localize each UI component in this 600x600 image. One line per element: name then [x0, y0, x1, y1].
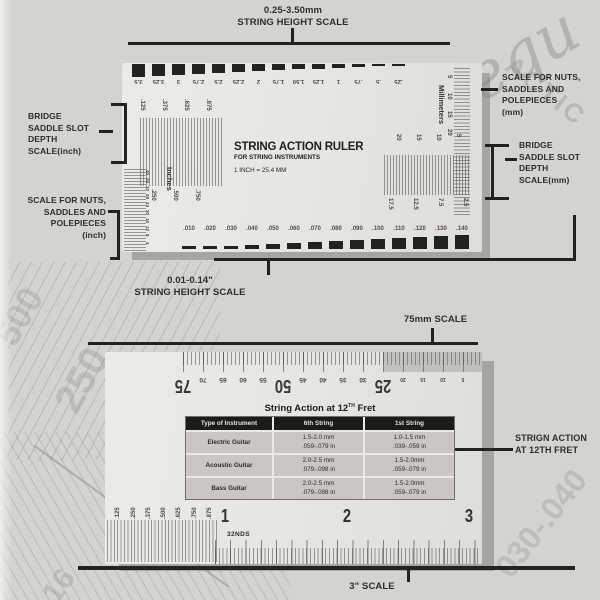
callout-line	[88, 342, 478, 345]
mm-gauge-square	[292, 64, 305, 69]
spec-table-value-cell: 1.0-1.5 mm .039-.059 in	[365, 432, 454, 453]
callout-dash	[99, 130, 113, 133]
mm-gauge-square	[172, 64, 185, 75]
callout-bracket	[124, 103, 127, 164]
nut-mm-label: 17.5	[387, 198, 393, 210]
inch-edge-number: 12	[145, 226, 150, 231]
mm-gauge-square	[392, 64, 405, 66]
mm-gauge-label: 1.75	[268, 78, 289, 84]
callout-text-line: SADDLES AND	[14, 207, 106, 219]
inch-gauge-label: .130	[430, 226, 452, 232]
inch-edge-number: 32	[145, 186, 150, 191]
inch-edge-ruler	[124, 169, 146, 251]
mm-gauge-label: .25	[388, 78, 409, 84]
inch-gauge-square	[287, 243, 301, 249]
spec-table-value-cell: 1.5-2.0mm .059-.079 in	[365, 478, 454, 499]
callout-string-action-12th: STRIGN ACTION AT 12TH FRET	[515, 433, 600, 456]
inch-fraction-label: .125	[115, 507, 121, 519]
callout-nuts-saddles-mm: SCALE FOR NUTS, SADDLES AND POLEPIECES (…	[502, 72, 598, 118]
nut-mm-label: 15	[415, 134, 421, 141]
callout-mm-string-height: 0.25-3.50mm STRING HEIGHT SCALE	[193, 5, 393, 28]
callout-tick	[291, 28, 294, 44]
spec-table-value-cell: 2.0-2.5 mm .079-.098 in	[274, 478, 363, 499]
ruler-title-block: STRING ACTION RULER FOR STRING INSTRUMEN…	[234, 141, 374, 174]
spec-table-header-cell: 6th String	[274, 417, 363, 430]
spec-table-title-end: Fret	[355, 403, 376, 414]
callout-bracket	[491, 144, 494, 200]
callout-line	[128, 42, 450, 45]
mm-gauge-label: 3.25	[148, 78, 169, 84]
mm-scale-minor-number: 40	[315, 376, 331, 383]
nut-mm-label: 20	[395, 134, 401, 141]
inch-fraction-label: .625	[176, 507, 182, 519]
callout-text-line: (mm)	[502, 107, 598, 119]
callout-text-line: SADDLE SLOT	[519, 152, 599, 164]
callout-tick	[431, 328, 434, 343]
callout-text-line: (inch)	[14, 230, 106, 242]
inch-fraction-label: .750	[192, 507, 198, 519]
inch-edge-number: 28	[145, 194, 150, 199]
mm-gauge-square	[272, 64, 285, 70]
inch-gauge-label: .080	[325, 226, 347, 232]
mm-gauge-square	[152, 64, 165, 76]
callout-tick	[267, 261, 270, 275]
callout-inch-string-height-range: 0.01-0.14"	[115, 275, 265, 287]
callout-bracket-arm	[111, 103, 124, 106]
callout-bracket-arm	[485, 144, 509, 147]
mm-scale-minor-number: 55	[255, 376, 271, 383]
mm-scale-major-number: 25	[372, 375, 395, 396]
callout-text-line: STRIGN ACTION	[515, 433, 600, 445]
product-photo: requACTIC500250030-.04016 STRING ACTION …	[0, 0, 600, 600]
inch-edge-number: 40	[145, 170, 150, 175]
string-action-ruler-card: STRING ACTION RULER FOR STRING INSTRUMEN…	[122, 63, 482, 252]
spec-table-header-cell: 1st String	[365, 417, 454, 430]
inch-scale-major-number: 2	[337, 506, 357, 527]
callout-text-line: AT 12TH FRET	[515, 445, 600, 457]
callout-bracket	[117, 210, 120, 260]
photo-edge-light	[0, 0, 12, 600]
mm-scale-minor-number: 60	[235, 376, 251, 383]
mm-gauge-square	[192, 64, 205, 74]
inch-fraction-label: .375	[146, 507, 152, 519]
saddle-inch-label: .625	[183, 99, 189, 111]
saddle-inch-label: .250	[150, 189, 156, 201]
mm-edge-ruler	[454, 68, 470, 216]
mm-gauge-label: 2	[248, 78, 269, 84]
spec-table-instrument-cell: Acoustic Guitar	[186, 455, 272, 476]
inch-gauge-label: .110	[388, 226, 410, 232]
inch-gauge-label: .040	[241, 226, 263, 232]
nut-mm-label: 10	[435, 134, 441, 141]
spec-table-value-cell: 2.0-2.5 mm .079-.098 in	[274, 455, 363, 476]
mm-edge-number: 10	[446, 93, 452, 100]
inch-gauge-label: .070	[304, 226, 326, 232]
inch-gauge-square	[182, 246, 196, 249]
mm-gauge-square	[352, 64, 365, 67]
mm-gauge-square	[252, 64, 265, 71]
inch-edge-number: 24	[145, 202, 150, 207]
inch-scale-major-number: 3	[459, 506, 479, 527]
saddle-inch-label: .125	[139, 99, 145, 111]
inch-gauge-label: .030	[220, 226, 242, 232]
mm-gauge-label: 1.50	[288, 78, 309, 84]
mm-scale-major-number: 75	[172, 375, 195, 396]
spec-table-title-text: String Action at 12	[265, 403, 349, 414]
inch-fraction-comb	[107, 520, 217, 562]
inch-gauge-square	[329, 241, 343, 249]
ruler-conversion: 1 INCH = 25.4 MM	[234, 167, 374, 174]
callout-text-line: DEPTH	[519, 163, 599, 175]
callout-text-line: BRIDGE	[519, 140, 599, 152]
nut-mm-label: 7.5	[437, 198, 443, 206]
inch-edge-number: 4	[145, 242, 150, 245]
mm-gauge-square	[312, 64, 325, 69]
callout-line	[78, 566, 575, 570]
inch-gauge-square	[455, 235, 469, 249]
inch-gauge-label: .140	[451, 226, 473, 232]
inch-fraction-label: .500	[161, 507, 167, 519]
mm-scale-minor-number: 45	[295, 376, 311, 383]
inch-gauge-label: .090	[346, 226, 368, 232]
string-action-spec-table: Type of Instrument6th String1st StringEl…	[185, 416, 455, 500]
spec-table-instrument-cell: Electric Guitar	[186, 432, 272, 453]
mm-scale-minor-number: 35	[335, 376, 351, 383]
callout-text-line: SCALE FOR NUTS,	[502, 72, 598, 84]
callout-75mm-scale: 75mm SCALE	[383, 314, 488, 326]
saddle-depth-comb-inch	[140, 118, 224, 186]
callout-bridge-saddle-inch: BRIDGE SADDLE SLOT DEPTH SCALE(inch)	[28, 111, 103, 157]
inch-gauge-square	[413, 237, 427, 249]
callout-text-line: POLEPIECES	[502, 95, 598, 107]
callout-text-line: DEPTH	[28, 134, 103, 146]
saddle-inch-label: .750	[194, 189, 200, 201]
mm-gauge-label: .75	[348, 78, 369, 84]
inch-gauge-label: .120	[409, 226, 431, 232]
callout-bracket-arm	[485, 197, 509, 200]
mm-scale-minor-number: 5	[455, 376, 471, 382]
inch-scale-major-number: 1	[215, 506, 235, 527]
spec-table-value-cell: 1.5-2.0mm .059-.079 in	[365, 455, 454, 476]
inch-gauge-square	[203, 246, 217, 249]
spec-table-instrument-cell: Bass Guitar	[186, 478, 272, 499]
callout-hook	[573, 215, 576, 261]
callout-text-line: SADDLE SLOT	[28, 123, 103, 135]
inch-gauge-square	[434, 236, 448, 249]
callout-text-line: SCALE(mm)	[519, 175, 599, 187]
callout-text-line: POLEPIECES	[14, 218, 106, 230]
mm-scale-minor-number: 65	[215, 376, 231, 383]
callout-text-line: SCALE FOR NUTS,	[14, 195, 106, 207]
callout-text-line: SCALE(inch)	[28, 146, 103, 158]
mm-scale-minor-number: 70	[195, 376, 211, 383]
mm-gauge-label: .5	[368, 78, 389, 84]
inch-edge-number: 8	[145, 234, 150, 237]
units-32nds-label: 32NDS	[227, 531, 250, 538]
saddle-inch-label: .375	[161, 99, 167, 111]
nut-mm-label: 12.5	[412, 198, 418, 210]
callout-text-line: BRIDGE	[28, 111, 103, 123]
callout-bridge-saddle-mm: BRIDGE SADDLE SLOT DEPTH SCALE(mm)	[519, 140, 599, 186]
callout-bracket-arm	[110, 257, 119, 260]
inch-edge-number: 36	[145, 178, 150, 183]
inch-gauge-square	[392, 238, 406, 249]
callout-bracket-arm	[111, 161, 124, 164]
callout-dash	[505, 158, 517, 161]
callout-mm-string-height-text: STRING HEIGHT SCALE	[193, 17, 393, 29]
inch-fraction-label: .875	[207, 507, 213, 519]
spec-table-value-cell: 1.5-2.0 mm .059-.079 in	[274, 432, 363, 453]
mm-gauge-label: 1	[328, 78, 349, 84]
inch-fraction-label: .250	[131, 507, 137, 519]
inch-gauge-square	[308, 242, 322, 249]
callout-dash	[481, 88, 498, 91]
spec-table-title: String Action at 12TH Fret	[185, 403, 455, 414]
saddle-inch-label: .500	[172, 189, 178, 201]
mm-gauge-label: 2.25	[228, 78, 249, 84]
mm-edge-number: 20	[446, 129, 452, 136]
inch-edge-number: 20	[145, 210, 150, 215]
millimeters-axis-label: Millimeters	[437, 85, 446, 124]
callout-text-line: SADDLES AND	[502, 84, 598, 96]
inch-gauge-label: .020	[199, 226, 221, 232]
mm-gauge-square	[132, 64, 145, 77]
mm-edge-number: 15	[446, 111, 452, 118]
action-gauge-ruler-card: String Action at 12TH Fret Type of Instr…	[105, 352, 482, 564]
mm-scale-minor-number: 10	[435, 376, 451, 382]
mm-scale-shaded-end	[383, 352, 482, 372]
mm-scale-major-number: 50	[272, 375, 295, 396]
mm-edge-number: 5	[446, 75, 452, 78]
saddle-inch-label: .875	[205, 99, 211, 111]
inch-gauge-label: .060	[283, 226, 305, 232]
spec-table-title-sup: TH	[348, 403, 355, 409]
callout-nuts-saddles-inch: SCALE FOR NUTS, SADDLES AND POLEPIECES (…	[14, 195, 106, 241]
mm-gauge-label: 3	[168, 78, 189, 84]
inch-gauge-label: .100	[367, 226, 389, 232]
inch-gauge-label: .050	[262, 226, 284, 232]
mm-scale-minor-number: 30	[355, 376, 371, 383]
inch-edge-number: 16	[145, 218, 150, 223]
inch-gauge-square	[266, 244, 280, 249]
callout-line	[455, 448, 513, 451]
inch-scale-ticks-major	[215, 540, 478, 564]
mm-gauge-square	[212, 64, 225, 73]
callout-inch-string-height: 0.01-0.14" STRING HEIGHT SCALE	[115, 275, 265, 298]
mm-gauge-label: 2.5	[208, 78, 229, 84]
inch-gauge-square	[350, 240, 364, 249]
mm-gauge-square	[232, 64, 245, 72]
mm-scale-minor-number: 15	[415, 376, 431, 382]
inch-gauge-label: .010	[178, 226, 200, 232]
mm-gauge-square	[332, 64, 345, 68]
callout-inch-string-height-text: STRING HEIGHT SCALE	[115, 287, 265, 299]
mm-gauge-label: 1.25	[308, 78, 329, 84]
inch-gauge-square	[371, 239, 385, 249]
spec-table-header-cell: Type of Instrument	[186, 417, 272, 430]
mm-scale-minor-number: 20	[395, 376, 411, 382]
inch-gauge-square	[224, 246, 238, 249]
ruler-title: STRING ACTION RULER	[234, 141, 374, 153]
callout-mm-string-height-range: 0.25-3.50mm	[193, 5, 393, 17]
mm-gauge-label: 2.75	[188, 78, 209, 84]
inch-gauge-square	[245, 245, 259, 249]
ruler-subtitle: FOR STRING INSTRUMENTS	[234, 154, 374, 161]
mm-gauge-square	[372, 64, 385, 66]
callout-3inch-scale: 3" SCALE	[312, 581, 432, 593]
mm-gauge-label: 3.5	[128, 78, 149, 84]
